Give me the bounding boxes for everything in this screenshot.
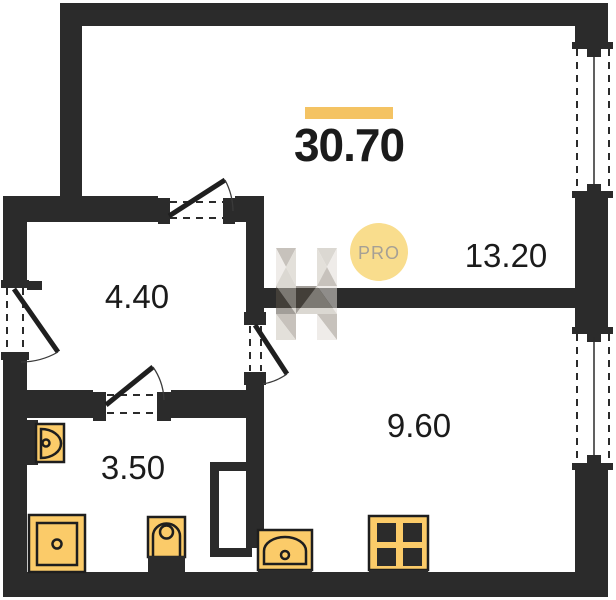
door-bathroom [106, 367, 164, 413]
room-area-kitchen-living: 9.60 [387, 407, 451, 445]
stove-icon [369, 516, 428, 577]
shower-tray-icon [29, 515, 85, 572]
window-upper [572, 42, 613, 198]
total-area-label: 30.70 [294, 118, 404, 172]
room-area-hallway: 4.40 [105, 278, 169, 316]
ventilation-duct [210, 462, 252, 557]
toilet-icon [148, 517, 185, 576]
room-area-living-room: 13.20 [465, 237, 548, 275]
pro-badge: PRO [350, 223, 408, 281]
door-entrance [7, 288, 58, 362]
room-area-bathroom: 3.50 [101, 449, 165, 487]
window-lower [572, 327, 613, 470]
kitchen-sink-icon [258, 530, 312, 577]
pro-badge-label: PRO [358, 243, 400, 263]
h-logo-watermark [276, 248, 337, 340]
bathroom-sink-icon [27, 420, 64, 465]
floor-plan: PRO [0, 0, 616, 600]
floor-plan-drawing: PRO [0, 0, 616, 600]
